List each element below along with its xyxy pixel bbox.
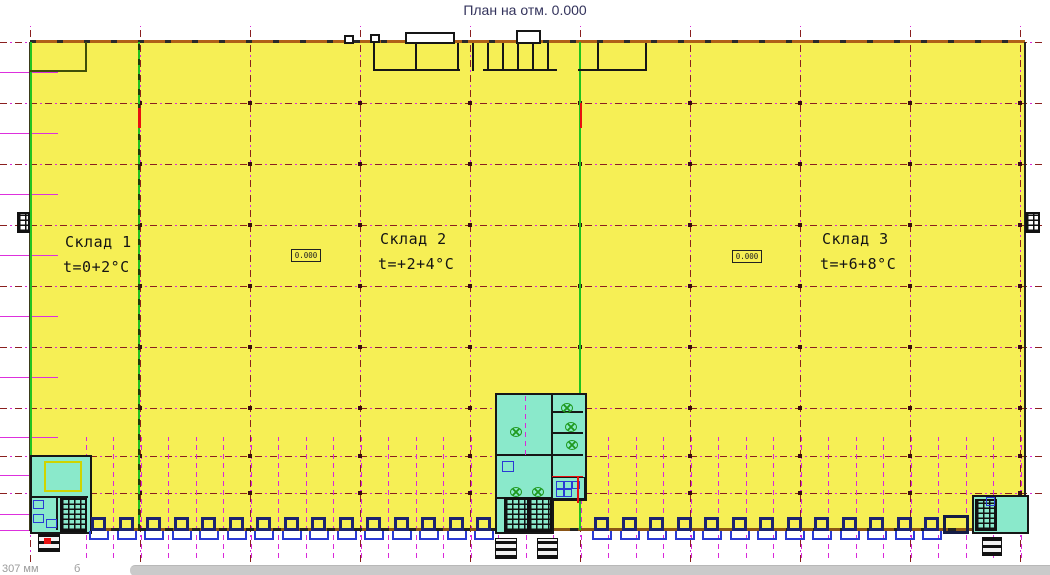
dock-door	[284, 517, 299, 531]
dock-door-seal	[675, 531, 695, 540]
dock-door-seal	[620, 531, 640, 540]
dock-door-seal	[757, 531, 777, 540]
alert-mark	[580, 103, 582, 128]
dock-door-seal	[702, 531, 722, 540]
dock-door	[256, 517, 271, 531]
partition-wall	[415, 43, 417, 71]
partition-wall	[502, 43, 504, 71]
roof-canopy	[405, 32, 455, 44]
dock-door	[201, 517, 216, 531]
partition-wall	[645, 43, 647, 71]
dock-door-seal	[172, 531, 192, 540]
alert-mark	[44, 538, 51, 544]
partition-wall	[483, 69, 557, 71]
warehouse2-name: Склад 2	[380, 230, 447, 248]
dock-door-seal	[730, 531, 750, 540]
dock-door	[339, 517, 354, 531]
exterior-stair	[495, 538, 517, 559]
dock-door	[174, 517, 189, 531]
inner-room	[44, 461, 82, 492]
truck-gate	[943, 515, 969, 534]
horizontal-scrollbar-thumb[interactable]	[130, 565, 1050, 575]
partition-wall	[373, 43, 375, 71]
dock-door-seal	[647, 531, 667, 540]
dock-door-seal	[309, 531, 329, 540]
status-text-left: 307 мм	[2, 563, 39, 575]
partition-wall	[457, 43, 459, 71]
partition-wall	[495, 454, 583, 456]
status-text-right: б	[74, 563, 80, 575]
dock-door	[476, 517, 491, 531]
plumbing-fixture	[986, 497, 995, 506]
dock-door	[119, 517, 134, 531]
fan-icon	[532, 487, 544, 497]
fan-icon	[510, 487, 522, 497]
dock-door	[146, 517, 161, 531]
dock-door	[366, 517, 381, 531]
roof-canopy	[516, 30, 541, 44]
exterior-stair	[537, 538, 558, 559]
dock-door-seal	[785, 531, 805, 540]
dock-door	[869, 517, 884, 531]
partition-wall	[517, 43, 519, 71]
dock-door-seal	[337, 531, 357, 540]
fan-icon	[510, 427, 522, 437]
dock-door	[311, 517, 326, 531]
dock-door	[91, 517, 106, 531]
staircase	[504, 497, 529, 532]
dock-door	[421, 517, 436, 531]
dock-door	[842, 517, 857, 531]
dock-door-seal	[364, 531, 384, 540]
fan-icon	[561, 403, 573, 413]
partition-wall	[547, 43, 549, 71]
dock-door-seal	[447, 531, 467, 540]
staircase	[528, 497, 552, 532]
dock-door	[759, 517, 774, 531]
plumbing-fixture	[33, 514, 44, 523]
right-wall	[1024, 42, 1026, 531]
elevation-marker: 0.000	[732, 250, 762, 263]
grid-subaxis-vertical	[525, 393, 526, 455]
dock-door-seal	[922, 531, 942, 540]
dock-door-seal	[592, 531, 612, 540]
plumbing-fixture	[556, 489, 564, 497]
dock-door	[449, 517, 464, 531]
dock-door-seal	[895, 531, 915, 540]
plumbing-fixture	[556, 481, 564, 489]
plumbing-fixture	[46, 519, 57, 528]
drawing-canvas[interactable]: План на отм. 0.000 Склад 1 t=0+2°C Склад…	[0, 0, 1050, 575]
warehouse2-temp: t=+2+4°C	[378, 255, 454, 273]
dock-door	[594, 517, 609, 531]
dock-door-seal	[144, 531, 164, 540]
warehouse3-temp: t=+6+8°C	[820, 255, 896, 273]
warehouse1-name: Склад 1	[65, 233, 132, 251]
dock-door	[814, 517, 829, 531]
dock-door-seal	[867, 531, 887, 540]
staircase	[60, 498, 87, 532]
dock-door-seal	[840, 531, 860, 540]
dock-door-seal	[392, 531, 412, 540]
fan-icon	[566, 440, 578, 450]
dock-door-seal	[199, 531, 219, 540]
dock-door-seal	[474, 531, 494, 540]
dock-door-seal	[812, 531, 832, 540]
dock-door	[229, 517, 244, 531]
alert-mark	[577, 477, 579, 503]
warehouse1-temp: t=0+2°C	[63, 258, 130, 276]
plumbing-fixture	[33, 500, 44, 509]
wall-hoist-box	[17, 212, 30, 233]
partition-wall	[472, 43, 474, 71]
dock-door-seal	[89, 531, 109, 540]
exterior-stair	[982, 537, 1002, 556]
dock-door	[622, 517, 637, 531]
dock-door	[704, 517, 719, 531]
partition-wall	[373, 69, 460, 71]
partition-wall	[597, 43, 599, 71]
partition-wall	[532, 43, 534, 71]
structures	[0, 0, 1050, 575]
partition-wall	[30, 70, 87, 72]
fan-icon	[565, 422, 577, 432]
partition-wall	[578, 69, 647, 71]
dock-door-seal	[282, 531, 302, 540]
roof-canopy	[370, 34, 380, 43]
plumbing-fixture	[502, 461, 514, 472]
alert-mark	[138, 108, 141, 128]
wall-hoist-box	[1025, 212, 1040, 233]
status-bar: 307 мм б	[0, 562, 1050, 575]
dock-door-seal	[117, 531, 137, 540]
warehouse3-name: Склад 3	[822, 230, 889, 248]
elevation-marker: 0.000	[291, 249, 321, 262]
dock-door	[677, 517, 692, 531]
dock-door	[732, 517, 747, 531]
plumbing-fixture	[564, 481, 572, 489]
partition-wall	[552, 432, 583, 434]
dock-door	[649, 517, 664, 531]
dock-door-seal	[254, 531, 274, 540]
dock-door	[924, 517, 939, 531]
partition-wall	[487, 43, 489, 71]
dock-door	[787, 517, 802, 531]
dock-door-seal	[419, 531, 439, 540]
partition-wall	[85, 42, 87, 72]
dock-door	[394, 517, 409, 531]
dock-door	[897, 517, 912, 531]
roof-canopy	[344, 35, 354, 44]
plumbing-fixture	[564, 489, 572, 497]
dock-door-seal	[227, 531, 247, 540]
